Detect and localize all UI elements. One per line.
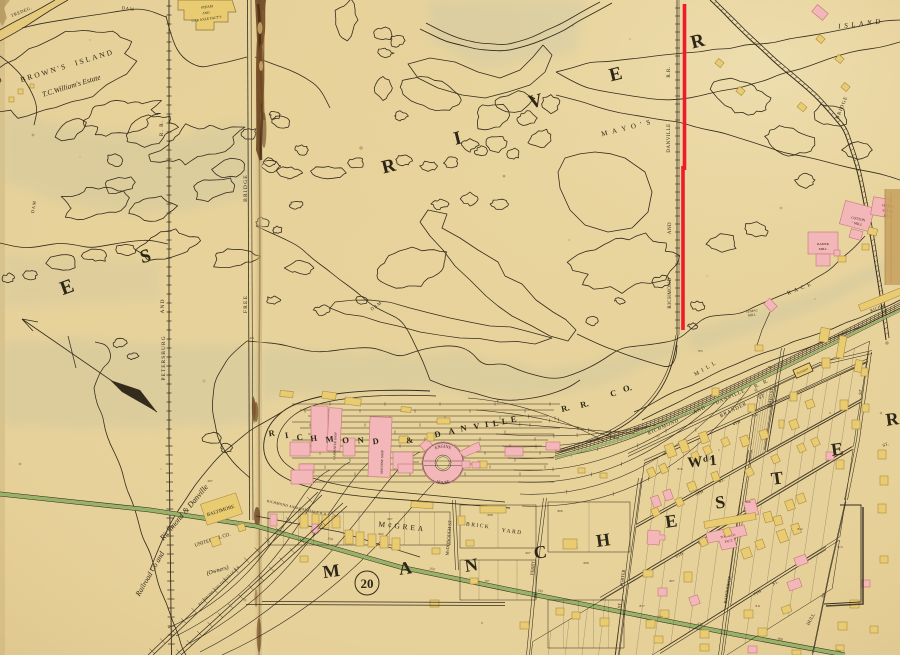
svg-text:Wᵈ1: Wᵈ1	[687, 453, 719, 472]
svg-text:PETERSBURG: PETERSBURG	[161, 335, 167, 380]
svg-text:H: H	[595, 529, 612, 551]
svg-text:M: M	[321, 560, 341, 582]
svg-text:207: 207	[207, 479, 212, 483]
svg-text:N: N	[463, 554, 479, 576]
svg-text:806: 806	[745, 500, 750, 504]
svg-text:20: 20	[361, 576, 374, 591]
svg-text:608: 608	[583, 561, 588, 565]
svg-text:807: 807	[669, 579, 674, 583]
svg-text:607: 607	[525, 551, 530, 555]
svg-text:816: 816	[677, 467, 682, 471]
svg-text:RADER: RADER	[817, 242, 830, 246]
svg-text:MILL: MILL	[819, 247, 828, 251]
svg-text:5: 5	[829, 411, 831, 415]
svg-text:201: 201	[249, 336, 254, 340]
svg-text:DANVILLE: DANVILLE	[667, 123, 672, 152]
svg-text:707: 707	[484, 579, 489, 583]
svg-text:C: C	[532, 541, 548, 563]
svg-text:806: 806	[557, 509, 562, 513]
svg-text:AND: AND	[160, 299, 166, 314]
svg-text:&: &	[405, 435, 413, 446]
svg-text:FREE: FREE	[243, 295, 249, 313]
svg-text:ST: ST	[533, 593, 538, 599]
svg-text:RICHMOND: RICHMOND	[668, 277, 673, 308]
svg-text:AND: AND	[668, 222, 673, 234]
svg-text:R. R.: R. R.	[159, 120, 165, 136]
svg-text:A: A	[397, 557, 413, 579]
svg-text:812: 812	[797, 527, 802, 531]
svg-text:702: 702	[767, 365, 772, 369]
svg-text:607: 607	[387, 517, 392, 521]
svg-text:MACHINE SHOP: MACHINE SHOP	[380, 450, 385, 474]
svg-text:813: 813	[837, 545, 842, 549]
svg-text:M: M	[325, 434, 334, 445]
svg-text:811: 811	[756, 604, 761, 608]
svg-text:R.R.: R.R.	[667, 66, 672, 77]
svg-text:703: 703	[697, 349, 702, 353]
svg-text:BRIDGE: BRIDGE	[243, 174, 249, 202]
svg-text:608: 608	[487, 513, 492, 517]
svg-text:4: 4	[765, 437, 767, 441]
svg-text:817: 817	[639, 604, 644, 608]
svg-text:602: 602	[378, 532, 383, 536]
